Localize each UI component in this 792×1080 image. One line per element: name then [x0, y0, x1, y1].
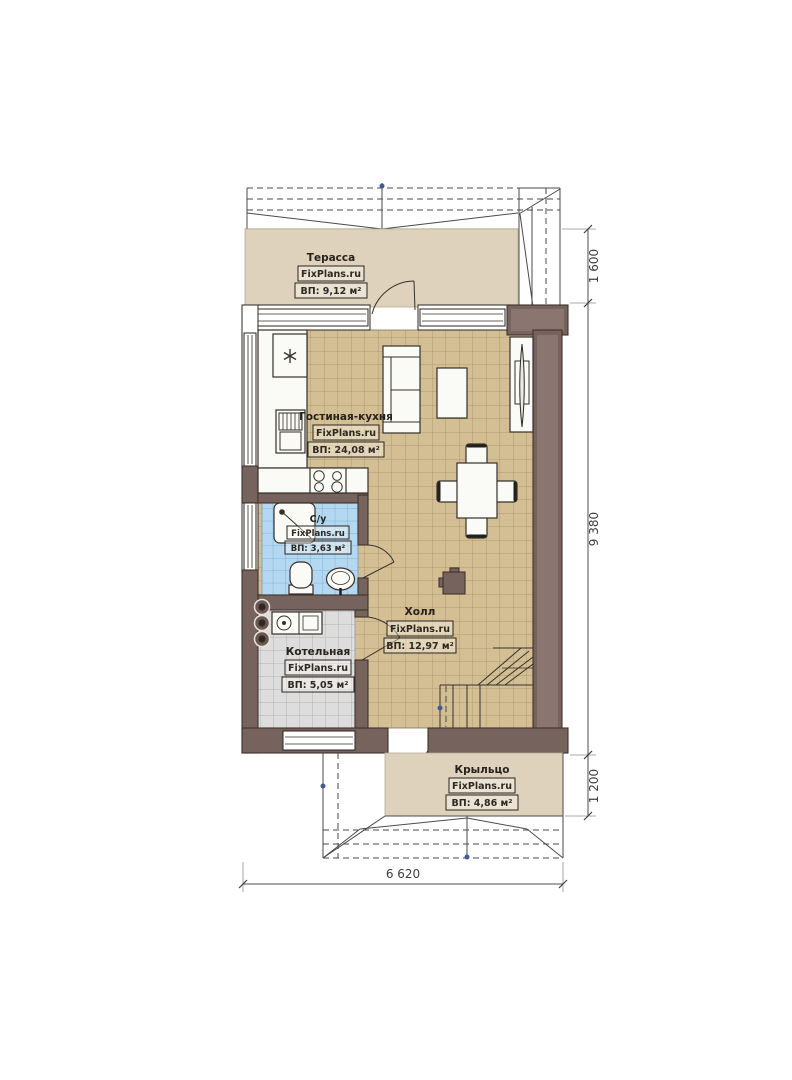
room-name: Терасса	[307, 252, 355, 264]
window-left-bathroom	[244, 503, 256, 570]
window-top-left	[256, 309, 368, 326]
brand-label: FixPlans.ru	[316, 428, 376, 439]
room-label-boiler: Котельная FixPlans.ru ВП: 5,05 м²	[282, 646, 354, 692]
chimney-block	[439, 568, 465, 594]
dim-house-side: 9 380	[587, 512, 601, 546]
room-name: Крыльцо	[455, 764, 510, 776]
room-name: Котельная	[286, 646, 350, 658]
stair-node-icon	[438, 706, 443, 711]
roof-node-icon	[465, 855, 470, 860]
dining-table	[457, 463, 497, 518]
room-name: С/у	[310, 514, 327, 525]
tv-console	[510, 337, 533, 432]
brand-label: FixPlans.ru	[301, 269, 361, 280]
room-area: ВП: 4,86 м²	[452, 798, 513, 809]
room-name: Гостиная-кухня	[299, 411, 393, 423]
dim-terrace-depth: 1 600	[587, 249, 601, 283]
floor-plan-drawing: Терасса FixPlans.ru ВП: 9,12 м² Гостиная…	[0, 0, 792, 1080]
fridge	[273, 334, 307, 377]
window-top-right	[420, 309, 505, 326]
gas-cylinders	[255, 600, 270, 647]
room-label-porch: Крыльцо FixPlans.ru ВП: 4,86 м²	[446, 764, 518, 810]
floor-plan-page: Терасса FixPlans.ru ВП: 9,12 м² Гостиная…	[0, 0, 792, 1080]
dim-porch-depth: 1 200	[587, 769, 601, 803]
roof-node-icon	[321, 784, 326, 789]
room-area: ВП: 9,12 м²	[301, 286, 362, 297]
window-bottom-boiler	[283, 731, 355, 750]
room-area: ВП: 12,97 м²	[386, 641, 454, 652]
brand-label: FixPlans.ru	[291, 529, 345, 539]
coffee-table	[437, 368, 467, 418]
room-area: ВП: 3,63 м²	[291, 544, 346, 554]
brand-label: FixPlans.ru	[452, 781, 512, 792]
tv-icon	[520, 344, 525, 427]
brand-label: FixPlans.ru	[390, 624, 450, 635]
room-name: Холл	[405, 606, 436, 618]
dim-house-front: 6 620	[386, 867, 420, 881]
window-left-kitchen	[244, 333, 256, 466]
roof-node-icon	[380, 184, 385, 189]
toilet	[289, 562, 313, 594]
room-label-living-kitchen: Гостиная-кухня FixPlans.ru ВП: 24,08 м²	[299, 411, 393, 457]
boiler-appliances	[272, 612, 322, 634]
room-area: ВП: 24,08 м²	[312, 445, 380, 456]
room-area: ВП: 5,05 м²	[288, 680, 349, 691]
stove	[310, 468, 346, 493]
brand-label: FixPlans.ru	[288, 663, 348, 674]
